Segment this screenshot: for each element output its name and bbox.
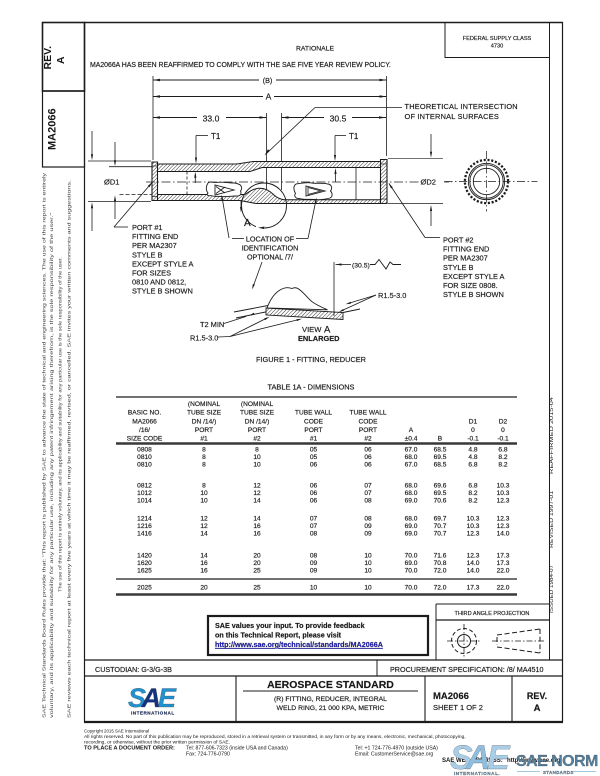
svg-text:INTERNATIONAL: INTERNATIONAL	[131, 711, 175, 716]
svg-text:17.3: 17.3	[497, 553, 510, 560]
svg-text:(NOMINAL: (NOMINAL	[188, 401, 221, 408]
svg-text:on this Technical Report, plea: on this Technical Report, please visit	[215, 631, 342, 640]
svg-text:69.7: 69.7	[434, 516, 447, 523]
svg-text:PORT #2: PORT #2	[443, 236, 474, 245]
svg-text:PROCUREMENT SPECIFICATION: /8/: PROCUREMENT SPECIFICATION: /8/ MA4510	[390, 665, 544, 674]
svg-text:68.0: 68.0	[405, 490, 418, 497]
svg-text:70.0: 70.0	[405, 585, 418, 592]
svg-text:07: 07	[310, 523, 318, 530]
svg-text:SAE NORM: SAE NORM	[516, 753, 598, 770]
svg-text:69.0: 69.0	[405, 531, 418, 538]
svg-text:1012: 1012	[137, 490, 152, 497]
svg-text:Email: CustomerService@sae.org: Email: CustomerService@sae.org	[355, 752, 433, 758]
svg-text:PORT: PORT	[304, 427, 322, 434]
svg-text:(R) FITTING, REDUCER, INTEGRAL: (R) FITTING, REDUCER, INTEGRAL	[274, 696, 387, 703]
svg-text:12: 12	[200, 523, 208, 530]
svg-text:FEDERAL SUPPLY CLASS: FEDERAL SUPPLY CLASS	[463, 36, 532, 42]
svg-text:71.6: 71.6	[434, 553, 447, 560]
svg-text:R1.5-3.0: R1.5-3.0	[190, 334, 218, 343]
svg-text:06: 06	[364, 454, 372, 461]
svg-text:16: 16	[200, 568, 208, 575]
svg-text:TABLE 1A - DIMENSIONS: TABLE 1A - DIMENSIONS	[268, 383, 355, 392]
svg-text:05: 05	[310, 454, 318, 461]
svg-text:-0.1: -0.1	[497, 436, 509, 443]
svg-text:12.3: 12.3	[497, 498, 510, 505]
svg-text:TUBE WALL: TUBE WALL	[349, 410, 386, 417]
svg-text:06: 06	[364, 447, 372, 454]
svg-text:25: 25	[253, 585, 261, 592]
svg-text:T1: T1	[211, 132, 221, 141]
svg-text:20: 20	[253, 560, 261, 567]
svg-text:14: 14	[253, 498, 261, 505]
svg-text:22.0: 22.0	[497, 585, 510, 592]
svg-text:voluntary, and its applicabili: voluntary, and its applicability and sui…	[49, 212, 54, 718]
svg-text:69.0: 69.0	[405, 498, 418, 505]
svg-text:(NOMINAL: (NOMINAL	[241, 401, 274, 408]
svg-text:CODE: CODE	[358, 418, 378, 425]
svg-text:06: 06	[310, 490, 318, 497]
svg-text:0812: 0812	[137, 483, 152, 490]
svg-text:8.2: 8.2	[468, 498, 477, 505]
svg-text:OF INTERNAL SURFACES: OF INTERNAL SURFACES	[405, 112, 499, 121]
svg-text:AEROSPACE STANDARD: AEROSPACE STANDARD	[267, 679, 394, 691]
svg-text:REVISED 1997-01: REVISED 1997-01	[549, 491, 555, 548]
svg-text:STYLE B: STYLE B	[132, 250, 162, 259]
svg-text:20: 20	[200, 585, 208, 592]
svg-text:8: 8	[202, 483, 206, 490]
svg-text:0: 0	[471, 427, 475, 434]
svg-text:A: A	[55, 56, 67, 64]
svg-text:VIEW: VIEW	[302, 325, 322, 334]
svg-text:TUBE WALL: TUBE WALL	[295, 410, 332, 417]
svg-text:08: 08	[310, 553, 318, 560]
svg-text:MA2066: MA2066	[433, 691, 469, 702]
svg-text:6.8: 6.8	[468, 483, 477, 490]
svg-text:PORT: PORT	[248, 427, 266, 434]
svg-text:FITTING END: FITTING END	[132, 232, 178, 241]
svg-text:MA2066A HAS BEEN REAFFIRMED TO: MA2066A HAS BEEN REAFFIRMED TO COMPLY WI…	[90, 62, 391, 69]
svg-text:68.5: 68.5	[434, 447, 447, 454]
svg-text:ISSUED 1984-07: ISSUED 1984-07	[549, 565, 555, 613]
svg-text:10.3: 10.3	[497, 490, 510, 497]
svg-text:14: 14	[253, 516, 261, 523]
svg-text:SHEET 1 OF 2: SHEET 1 OF 2	[433, 703, 483, 712]
svg-text:70.7: 70.7	[434, 523, 447, 530]
svg-text:12.3: 12.3	[497, 523, 510, 530]
svg-text:17.3: 17.3	[497, 560, 510, 567]
svg-text:(30.5): (30.5)	[352, 263, 370, 270]
svg-text:72.0: 72.0	[434, 585, 447, 592]
svg-text:33.0: 33.0	[203, 114, 220, 124]
svg-text:REV.: REV.	[42, 46, 54, 70]
svg-text:06: 06	[310, 462, 318, 469]
svg-text:T1: T1	[349, 132, 359, 141]
svg-text:10: 10	[364, 553, 372, 560]
svg-text:1014: 1014	[137, 498, 152, 505]
svg-text:05: 05	[310, 447, 318, 454]
svg-text:CODE: CODE	[304, 418, 324, 425]
svg-text:PORT: PORT	[195, 427, 213, 434]
svg-text:10.3: 10.3	[497, 483, 510, 490]
svg-text:B: B	[438, 436, 443, 443]
svg-text:07: 07	[364, 483, 372, 490]
svg-text:8.2: 8.2	[498, 454, 507, 461]
svg-text:All rights reserved. No part o: All rights reserved. No part of this pub…	[84, 734, 466, 740]
svg-text:SAE Technical Standards Board: SAE Technical Standards Board Rules prov…	[42, 172, 47, 718]
svg-text:PORT: PORT	[359, 427, 377, 434]
svg-text:14.0: 14.0	[467, 568, 480, 575]
svg-text:06: 06	[310, 483, 318, 490]
svg-text:20: 20	[253, 553, 261, 560]
svg-text:DN /14/): DN /14/)	[192, 418, 217, 425]
svg-text:BASIC NO.: BASIC NO.	[128, 410, 162, 417]
svg-text:TUBE SIZE: TUBE SIZE	[240, 410, 275, 417]
svg-text:10: 10	[253, 454, 261, 461]
svg-text:Copyright 2015 SAE Internation: Copyright 2015 SAE International	[84, 729, 149, 734]
svg-text:1420: 1420	[137, 553, 152, 560]
svg-text:17.3: 17.3	[467, 585, 480, 592]
svg-text:09: 09	[364, 531, 372, 538]
svg-text:68.0: 68.0	[405, 454, 418, 461]
svg-text:70.0: 70.0	[405, 553, 418, 560]
svg-text:0: 0	[501, 427, 505, 434]
svg-text:FOR SIZE 0808.: FOR SIZE 0808.	[443, 281, 498, 290]
svg-text:#1: #1	[200, 436, 208, 443]
svg-text:SAE reviews each technical rep: SAE reviews each technical report at lea…	[67, 180, 72, 718]
svg-text:12.3: 12.3	[467, 553, 480, 560]
svg-text:8: 8	[202, 462, 206, 469]
svg-text:70.8: 70.8	[434, 560, 447, 567]
svg-text:09: 09	[310, 560, 318, 567]
svg-text:22.0: 22.0	[497, 568, 510, 575]
svg-text:A: A	[244, 218, 251, 229]
svg-text:1416: 1416	[137, 531, 152, 538]
svg-text:D1: D1	[469, 418, 478, 425]
svg-text:TO PLACE A DOCUMENT ORDER:: TO PLACE A DOCUMENT ORDER:	[84, 746, 175, 752]
svg-text:09: 09	[364, 523, 372, 530]
svg-text:STANDARDS: STANDARDS	[543, 770, 574, 775]
svg-text:THEORETICAL INTERSECTION: THEORETICAL INTERSECTION	[405, 102, 518, 111]
svg-text:0808: 0808	[137, 447, 152, 454]
svg-text:PER MA2307: PER MA2307	[132, 241, 177, 250]
svg-text:14.0: 14.0	[497, 531, 510, 538]
svg-text:STYLE B: STYLE B	[443, 263, 473, 272]
svg-text:16: 16	[253, 531, 261, 538]
svg-text:67.0: 67.0	[405, 462, 418, 469]
svg-text:#2: #2	[253, 436, 261, 443]
svg-text:1625: 1625	[137, 568, 152, 575]
svg-text:10: 10	[310, 585, 318, 592]
svg-text:10.3: 10.3	[467, 523, 480, 530]
svg-text:8: 8	[202, 454, 206, 461]
svg-text:12.3: 12.3	[497, 516, 510, 523]
svg-text:TUBE SIZE: TUBE SIZE	[187, 410, 222, 417]
svg-text:68.5: 68.5	[434, 462, 447, 469]
svg-text:8: 8	[255, 447, 259, 454]
svg-text:0810: 0810	[137, 454, 152, 461]
svg-text:69.6: 69.6	[434, 483, 447, 490]
svg-text:12: 12	[253, 483, 261, 490]
svg-text:67.0: 67.0	[405, 447, 418, 454]
svg-text:#2: #2	[364, 436, 372, 443]
svg-text:http://www.sae.org/technical/s: http://www.sae.org/technical/standards/M…	[215, 640, 383, 649]
svg-text:09: 09	[310, 568, 318, 575]
svg-text:12: 12	[200, 516, 208, 523]
svg-text:69.5: 69.5	[434, 490, 447, 497]
svg-text:REAFFIRMED 2015-04: REAFFIRMED 2015-04	[549, 397, 555, 474]
svg-text:69.0: 69.0	[405, 560, 418, 567]
svg-text:08: 08	[310, 531, 318, 538]
svg-text:PER MA2307: PER MA2307	[443, 254, 488, 263]
svg-text:69.0: 69.0	[405, 523, 418, 530]
svg-text:EXCEPT STYLE A: EXCEPT STYLE A	[132, 259, 194, 268]
svg-text:70.0: 70.0	[405, 568, 418, 575]
svg-text:68.0: 68.0	[405, 483, 418, 490]
svg-text:EXCEPT STYLE A: EXCEPT STYLE A	[443, 272, 505, 281]
svg-text:T2 MIN: T2 MIN	[200, 320, 224, 329]
svg-text:PORT #1: PORT #1	[132, 223, 163, 232]
svg-text:THIRD ANGLE PROJECTION: THIRD ANGLE PROJECTION	[455, 611, 530, 617]
svg-text:08: 08	[364, 498, 372, 505]
svg-text:10: 10	[364, 560, 372, 567]
svg-text:D2: D2	[499, 418, 508, 425]
svg-text:STYLE B SHOWN: STYLE B SHOWN	[443, 290, 504, 299]
svg-text:INTERNATIONAL.: INTERNATIONAL.	[454, 771, 500, 776]
svg-text:SIZE CODE: SIZE CODE	[127, 436, 163, 443]
svg-text:E: E	[158, 683, 177, 713]
svg-text:MA2066: MA2066	[132, 418, 157, 425]
svg-text:0810: 0810	[137, 462, 152, 469]
svg-text:SAE values your input. To prov: SAE values your input. To provide feedba…	[215, 621, 365, 630]
svg-text:8.2: 8.2	[498, 462, 507, 469]
svg-text:4.8: 4.8	[468, 454, 477, 461]
svg-text:10.3: 10.3	[467, 516, 480, 523]
svg-text:OPTIONAL /7/: OPTIONAL /7/	[247, 253, 293, 262]
svg-text:10: 10	[200, 498, 208, 505]
svg-text:4.8: 4.8	[468, 447, 477, 454]
svg-text:A: A	[266, 92, 272, 102]
svg-text:/16/: /16/	[139, 427, 150, 434]
svg-text:REV.: REV.	[527, 691, 547, 701]
svg-text:12: 12	[253, 490, 261, 497]
svg-text:16: 16	[253, 523, 261, 530]
svg-text:MA2066: MA2066	[47, 108, 59, 150]
svg-text:1214: 1214	[137, 516, 152, 523]
svg-text:14: 14	[200, 553, 208, 560]
svg-text:70.7: 70.7	[434, 531, 447, 538]
svg-text:14: 14	[200, 531, 208, 538]
svg-text:25: 25	[253, 568, 261, 575]
svg-text:A: A	[534, 703, 541, 714]
svg-text:69.5: 69.5	[434, 454, 447, 461]
svg-text:1216: 1216	[137, 523, 152, 530]
svg-text:WELD RING, 21 000 KPA, METRIC: WELD RING, 21 000 KPA, METRIC	[277, 705, 385, 712]
svg-text:16: 16	[200, 560, 208, 567]
svg-text:±0.4: ±0.4	[405, 436, 418, 443]
svg-text:4730: 4730	[491, 44, 503, 50]
svg-text:IDENTIFICATION: IDENTIFICATION	[242, 244, 299, 253]
svg-text:RATIONALE: RATIONALE	[296, 46, 334, 53]
svg-text:07: 07	[364, 490, 372, 497]
svg-text:DN /14/): DN /14/)	[245, 418, 270, 425]
svg-text:08: 08	[364, 516, 372, 523]
svg-text:6.8: 6.8	[498, 447, 507, 454]
svg-text:The use of this report is enti: The use of this report is entirely volun…	[58, 257, 63, 592]
svg-text:STYLE B SHOWN: STYLE B SHOWN	[132, 287, 193, 296]
svg-text:06: 06	[364, 462, 372, 469]
svg-text:30.5: 30.5	[330, 114, 347, 124]
svg-text:1620: 1620	[137, 560, 152, 567]
svg-text:2025: 2025	[137, 585, 152, 592]
svg-text:10: 10	[200, 490, 208, 497]
svg-text:12.3: 12.3	[467, 531, 480, 538]
svg-text:68.0: 68.0	[405, 516, 418, 523]
svg-text:(B): (B)	[263, 76, 273, 85]
svg-text:70.6: 70.6	[434, 498, 447, 505]
svg-text:8.2: 8.2	[468, 490, 477, 497]
svg-text:07: 07	[310, 516, 318, 523]
svg-text:ENLARGED: ENLARGED	[298, 334, 340, 343]
svg-text:0810 AND 0812,: 0810 AND 0812,	[132, 278, 186, 287]
svg-text:10: 10	[364, 585, 372, 592]
svg-text:6.8: 6.8	[468, 462, 477, 469]
svg-text:FOR SIZES: FOR SIZES	[132, 269, 171, 278]
svg-text:A: A	[409, 427, 414, 434]
svg-text:06: 06	[310, 498, 318, 505]
svg-text:FIGURE 1 - FITTING, REDUCER: FIGURE 1 - FITTING, REDUCER	[256, 355, 366, 364]
svg-text:CUSTODIAN: G-3/G-3B: CUSTODIAN: G-3/G-3B	[95, 665, 172, 674]
svg-text:14.0: 14.0	[467, 560, 480, 567]
svg-text:ØD2: ØD2	[421, 178, 436, 187]
svg-text:Fax: 724-776-0790: Fax: 724-776-0790	[186, 752, 230, 758]
svg-text:72.0: 72.0	[434, 568, 447, 575]
svg-text:FITTING END: FITTING END	[443, 245, 489, 254]
svg-text:ØD1: ØD1	[104, 178, 119, 187]
svg-text:LOCATION OF: LOCATION OF	[246, 235, 295, 244]
svg-text:8: 8	[202, 447, 206, 454]
svg-text:10: 10	[364, 568, 372, 575]
svg-text:10: 10	[253, 462, 261, 469]
svg-text:R1.5-3.0: R1.5-3.0	[378, 291, 406, 300]
svg-text:-0.1: -0.1	[467, 436, 479, 443]
svg-text:#1: #1	[310, 436, 318, 443]
